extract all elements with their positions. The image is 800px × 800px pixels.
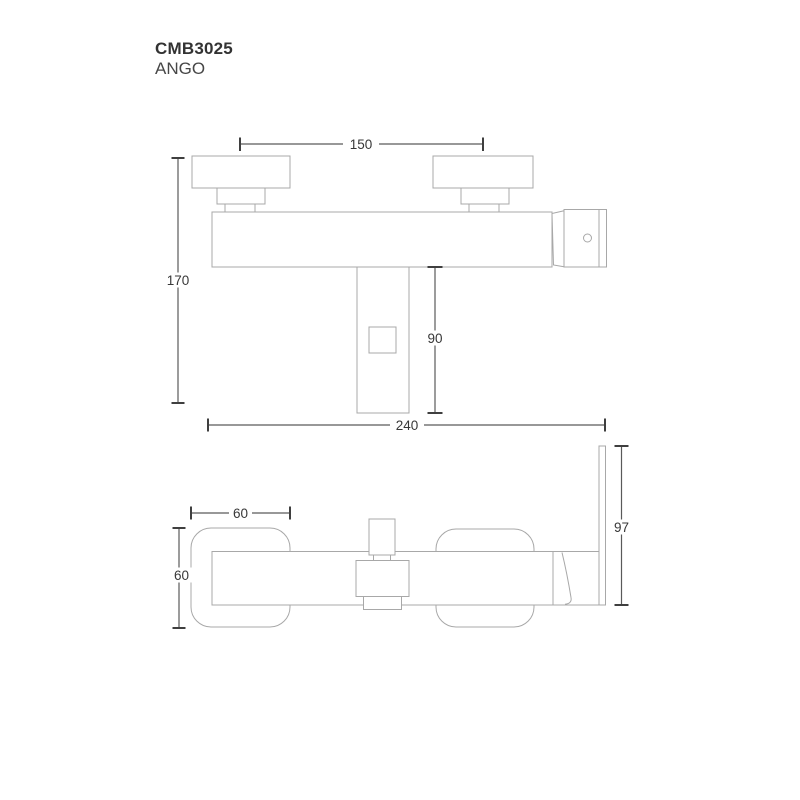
front-right-escutcheon-neck <box>469 204 499 212</box>
dimension-170-label: 170 <box>167 273 190 288</box>
plan-handle-cap <box>553 552 599 606</box>
dimension-97: 97 <box>611 446 632 605</box>
front-right-escutcheon-step <box>461 188 509 204</box>
plan-spout-base <box>364 597 402 610</box>
front-left-escutcheon-step <box>217 188 265 204</box>
front-view: 150 170 90 <box>163 137 607 434</box>
page: CMB3025 ANGO <box>0 0 800 800</box>
dimension-60-width: 60 <box>191 506 290 522</box>
plan-spout-block <box>356 561 409 597</box>
plan-handle-lever <box>599 446 606 605</box>
dimension-97-label: 97 <box>614 520 629 535</box>
front-handle-neck <box>552 211 564 267</box>
dimension-60-depth-label: 60 <box>174 568 189 583</box>
dimension-90-label: 90 <box>427 331 442 346</box>
front-left-escutcheon <box>192 156 290 188</box>
front-spout-detail <box>369 327 396 353</box>
plan-spout-connector <box>374 555 391 561</box>
technical-drawing: 150 170 90 <box>0 0 800 800</box>
dimension-60-depth: 60 <box>170 528 193 628</box>
dimension-60-width-label: 60 <box>233 506 248 521</box>
front-right-escutcheon <box>433 156 533 188</box>
dimension-150: 150 <box>240 137 483 153</box>
plan-view: 60 60 97 <box>170 446 632 628</box>
dimension-90: 90 <box>424 267 446 413</box>
dimension-240: 240 <box>208 418 605 434</box>
plan-spout-tube <box>369 519 395 555</box>
front-left-escutcheon-neck <box>225 204 255 212</box>
front-handle-cap <box>564 210 607 268</box>
front-body-bar <box>212 212 552 267</box>
dimension-150-label: 150 <box>350 137 373 152</box>
dimension-240-label: 240 <box>396 418 419 433</box>
dimension-170: 170 <box>163 158 193 403</box>
